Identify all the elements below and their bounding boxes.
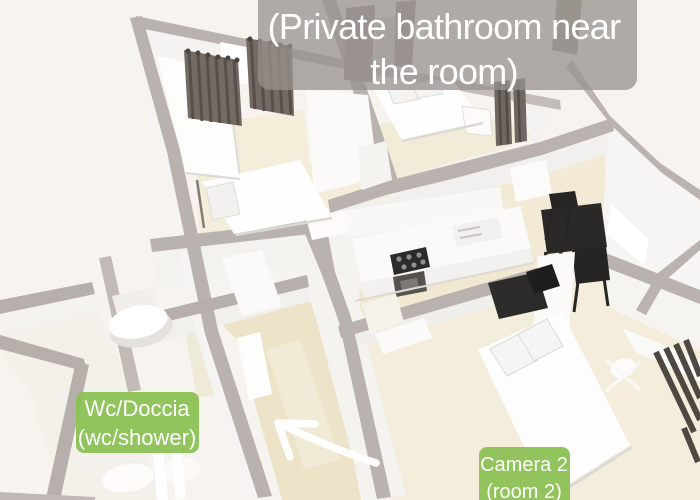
svg-text:Camera 2: Camera 2 [480, 454, 568, 476]
svg-text:(wc/shower): (wc/shower) [78, 425, 197, 450]
svg-text:(room 2): (room 2) [486, 481, 562, 500]
svg-text:(Private bathroom near: (Private bathroom near [268, 6, 621, 47]
svg-text:the room): the room) [370, 51, 518, 92]
svg-text:Wc/Doccia: Wc/Doccia [84, 396, 190, 421]
